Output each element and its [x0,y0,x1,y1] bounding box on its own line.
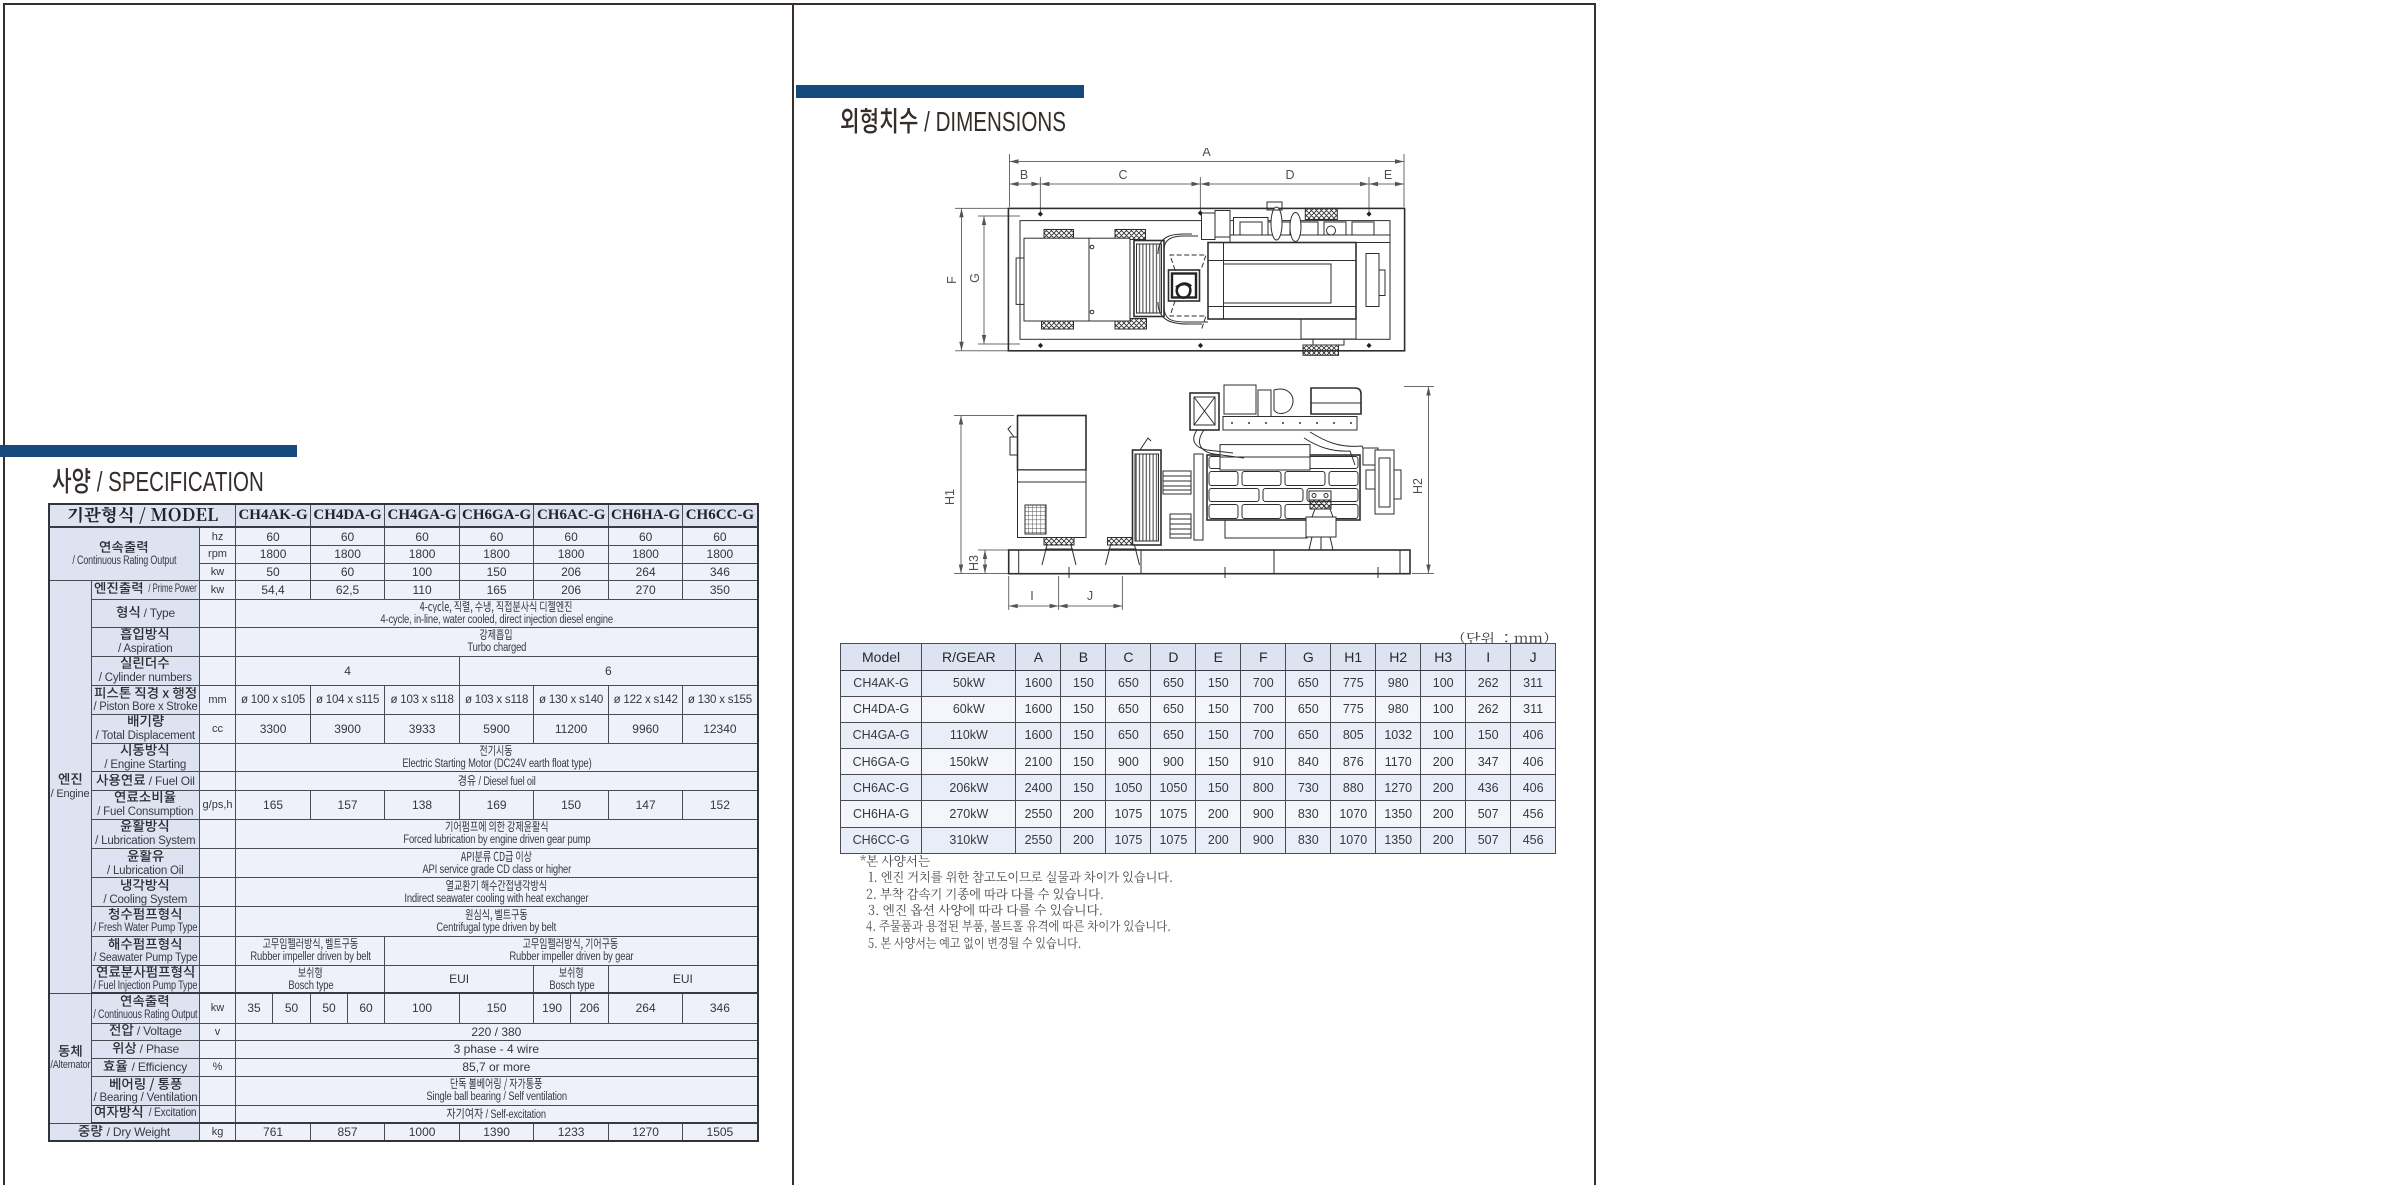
svg-text:G: G [968,273,982,283]
svg-text:A: A [1202,148,1211,159]
svg-text:J: J [1087,589,1093,603]
svg-text:B: B [1020,168,1028,182]
svg-text:F: F [945,276,959,284]
svg-text:D: D [1285,168,1294,182]
svg-text:H3: H3 [967,555,981,571]
svg-text:H1: H1 [944,489,957,505]
svg-text:C: C [1118,168,1127,182]
svg-text:E: E [1384,168,1392,182]
svg-text:H2: H2 [1411,478,1425,494]
svg-text:I: I [1030,589,1033,603]
